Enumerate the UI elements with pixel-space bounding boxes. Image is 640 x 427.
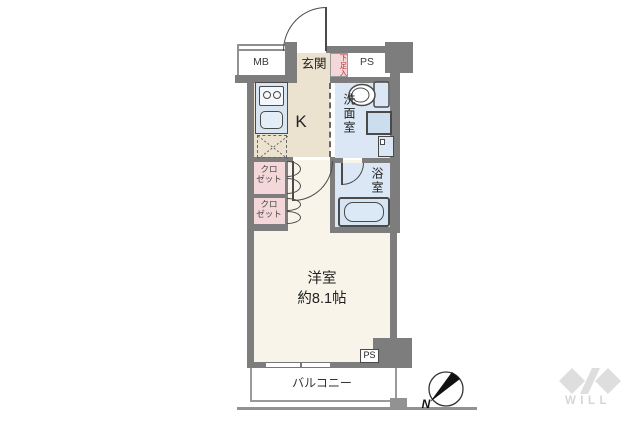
sliding-door-track — [329, 83, 331, 157]
corridor-double-line — [237, 44, 285, 51]
vanity-unit — [366, 111, 392, 135]
refrigerator-x-icon — [258, 136, 288, 159]
shoe-cabinet-label: 下足入 — [331, 54, 347, 77]
entrance-door-leaf — [325, 7, 327, 51]
closet-upper-label: クロ ゼット — [254, 165, 284, 191]
closet-lower-label-line2: ゼット — [256, 209, 282, 219]
closet-upper-label-line1: クロ — [260, 164, 277, 174]
compass-north-label: N — [418, 398, 434, 413]
mb-label: MB — [243, 56, 279, 69]
stove-burner-left-icon — [263, 91, 271, 99]
will-logo-text: WILL — [556, 395, 620, 408]
mb-left-line — [237, 44, 239, 76]
wall-top-right-block — [385, 42, 413, 73]
wall-closet-divider — [253, 194, 285, 198]
washroom-label: 洗面室 — [339, 87, 355, 141]
wall-bath-top-right — [362, 158, 400, 163]
closet-upper-label-line2: ゼット — [256, 174, 282, 184]
kitchen-sink — [260, 111, 283, 129]
entrance-door-swing-arc — [283, 7, 326, 51]
wall-right-lower — [390, 233, 397, 343]
bathroom-label: 浴室 — [367, 164, 383, 198]
ps-top-label: PS — [350, 56, 384, 69]
ps-bottom-box: PS — [360, 349, 379, 363]
stove-burner-right-icon — [273, 91, 281, 99]
bathroom-door-leaf — [341, 163, 343, 185]
ps-bottom-label: PS — [361, 350, 378, 361]
floorplan-canvas: PS MB 玄関 下足入 PS K 洗面室 浴室 クロ ゼット クロ ゼット 洋… — [0, 0, 640, 427]
closet-lower-label-line1: クロ — [260, 199, 277, 209]
wall-top-strip — [326, 46, 386, 53]
closet-lower-label: クロ ゼット — [254, 200, 284, 226]
entrance-label: 玄関 — [295, 57, 333, 72]
washer-pan-handle — [380, 139, 385, 145]
refrigerator-space — [257, 135, 287, 158]
bathtub-inner — [344, 202, 384, 222]
kitchen-label: K — [290, 112, 312, 132]
main-room-name-label: 洋室 — [294, 271, 350, 288]
main-room-size-label: 約8.1帖 — [291, 291, 353, 308]
balcony-label: バルコニー — [288, 377, 356, 393]
will-logo-icon — [552, 362, 638, 398]
